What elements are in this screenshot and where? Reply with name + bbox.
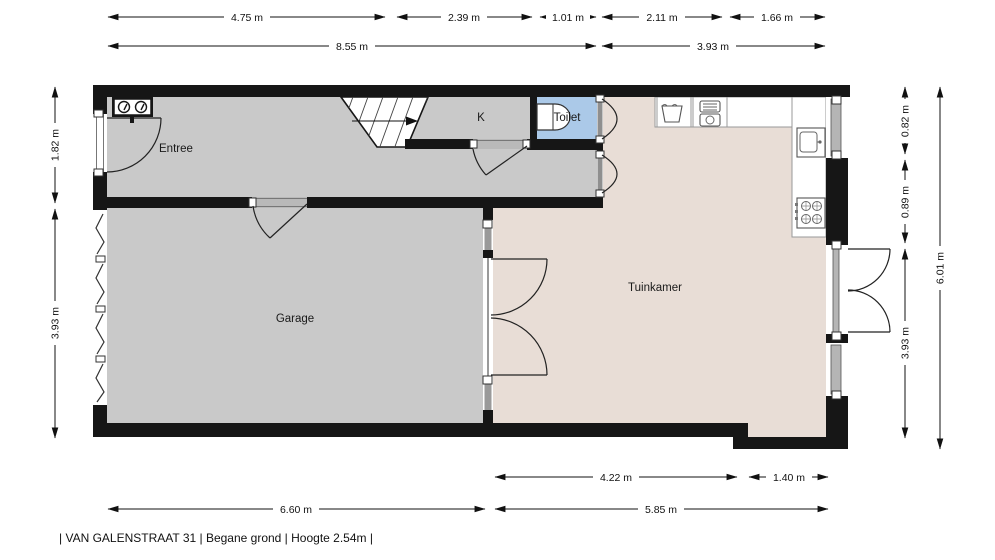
svg-text:3.93 m: 3.93 m bbox=[697, 41, 729, 53]
svg-text:6.01 m: 6.01 m bbox=[935, 252, 947, 284]
tuinkamer-label: Tuinkamer bbox=[628, 282, 682, 294]
dim-right-3: 3.93 m bbox=[899, 249, 912, 438]
dim-top-1: 4.75 m bbox=[108, 10, 385, 24]
svg-text:0.89 m: 0.89 m bbox=[900, 186, 912, 218]
partition-glazing bbox=[483, 220, 492, 410]
svg-text:2.39 m: 2.39 m bbox=[448, 12, 480, 24]
oven-washer-icon bbox=[700, 101, 720, 126]
wall-partition-top bbox=[483, 208, 493, 220]
washbasin-icon bbox=[662, 105, 682, 123]
wall-bottom-main bbox=[93, 423, 748, 437]
svg-text:1.82 m: 1.82 m bbox=[50, 129, 62, 161]
svg-text:3.93 m: 3.93 m bbox=[50, 307, 62, 339]
dim-top-total-right: 3.93 m bbox=[602, 39, 825, 53]
garage-label: Garage bbox=[276, 313, 314, 325]
kitchen-label: K bbox=[477, 112, 485, 124]
french-doors-opening bbox=[826, 241, 848, 340]
svg-text:1.01 m: 1.01 m bbox=[552, 12, 584, 24]
dim-right-total: 6.01 m bbox=[934, 87, 947, 449]
wall-right-corner bbox=[826, 396, 848, 449]
svg-text:6.60 m: 6.60 m bbox=[280, 504, 312, 516]
dim-left-1: 1.82 m bbox=[49, 87, 62, 203]
wall-right-mid bbox=[826, 158, 848, 245]
dim-bottom-1: 4.22 m bbox=[495, 470, 737, 484]
front-door-opening bbox=[93, 114, 107, 172]
dim-top-2: 2.39 m bbox=[397, 10, 532, 24]
svg-text:8.55 m: 8.55 m bbox=[336, 41, 368, 53]
window-right-upper bbox=[826, 96, 848, 159]
hob-icon bbox=[795, 198, 825, 228]
svg-text:4.75 m: 4.75 m bbox=[231, 12, 263, 24]
garage-hall-opening bbox=[249, 197, 307, 208]
svg-text:4.22 m: 4.22 m bbox=[600, 472, 632, 484]
wall-toilet-bottom bbox=[530, 139, 603, 150]
svg-text:3.93 m: 3.93 m bbox=[900, 327, 912, 359]
svg-text:5.85 m: 5.85 m bbox=[645, 504, 677, 516]
svg-text:0.82 m: 0.82 m bbox=[900, 105, 912, 137]
svg-text:1.66 m: 1.66 m bbox=[761, 12, 793, 24]
dim-bottom-total-right: 5.85 m bbox=[495, 502, 828, 516]
dim-top-4: 2.11 m bbox=[602, 10, 722, 24]
floorplan-canvas: Entree K Toilet Tuinkamer Garage 4.75 m … bbox=[0, 0, 995, 560]
svg-text:1.40 m: 1.40 m bbox=[773, 472, 805, 484]
dim-bottom-2: 1.40 m bbox=[749, 470, 828, 484]
entree-label: Entree bbox=[159, 143, 193, 155]
svg-text:2.11 m: 2.11 m bbox=[646, 12, 678, 24]
wall-hall-bottom-left bbox=[93, 197, 252, 208]
hall-door-leaf bbox=[596, 151, 604, 197]
dim-bottom-total-left: 6.60 m bbox=[108, 502, 485, 516]
toilet-label: Toilet bbox=[554, 112, 582, 124]
dim-top-3: 1.01 m bbox=[540, 10, 596, 24]
dim-left-2: 3.93 m bbox=[49, 209, 62, 438]
dim-right-2: 0.89 m bbox=[899, 160, 912, 243]
dim-top-total-left: 8.55 m bbox=[108, 39, 596, 53]
wall-partition-bottom bbox=[483, 410, 493, 423]
window-right-lower bbox=[826, 343, 848, 399]
wall-hall-bottom-right bbox=[307, 197, 603, 208]
garage-door bbox=[93, 210, 107, 405]
sink-icon bbox=[797, 128, 825, 157]
wall-partition-mid bbox=[483, 250, 493, 258]
dim-top-5: 1.66 m bbox=[730, 10, 825, 24]
toilet-door-leaf bbox=[596, 95, 604, 143]
wall-k-bottom bbox=[405, 139, 473, 149]
dim-right-1: 0.82 m bbox=[899, 87, 912, 154]
k-door-opening bbox=[470, 139, 530, 149]
wall-top bbox=[93, 85, 850, 97]
plan-footer-text: | VAN GALENSTRAAT 31 | Begane grond | Ho… bbox=[59, 531, 373, 545]
french-doors-swing bbox=[848, 249, 890, 332]
floorplan-page: Entree K Toilet Tuinkamer Garage 4.75 m … bbox=[0, 0, 995, 560]
